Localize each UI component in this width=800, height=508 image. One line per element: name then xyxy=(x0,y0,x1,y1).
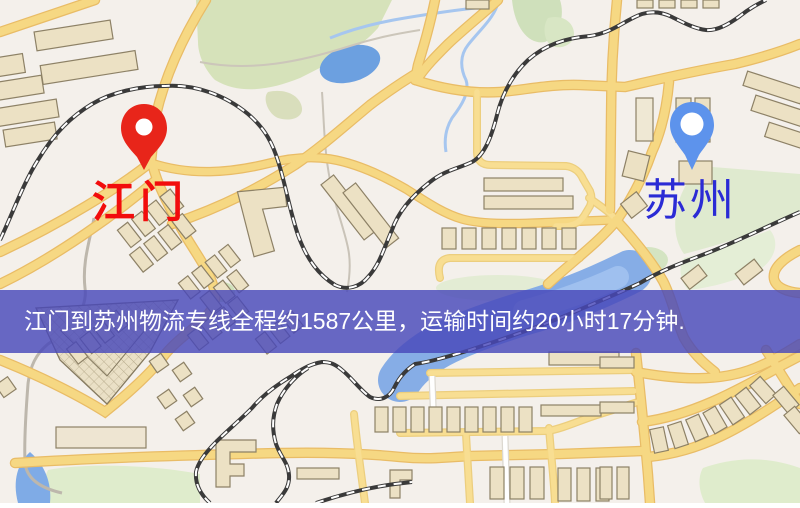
svg-text:江门: 江门 xyxy=(92,179,188,227)
svg-text:苏州: 苏州 xyxy=(643,176,737,225)
